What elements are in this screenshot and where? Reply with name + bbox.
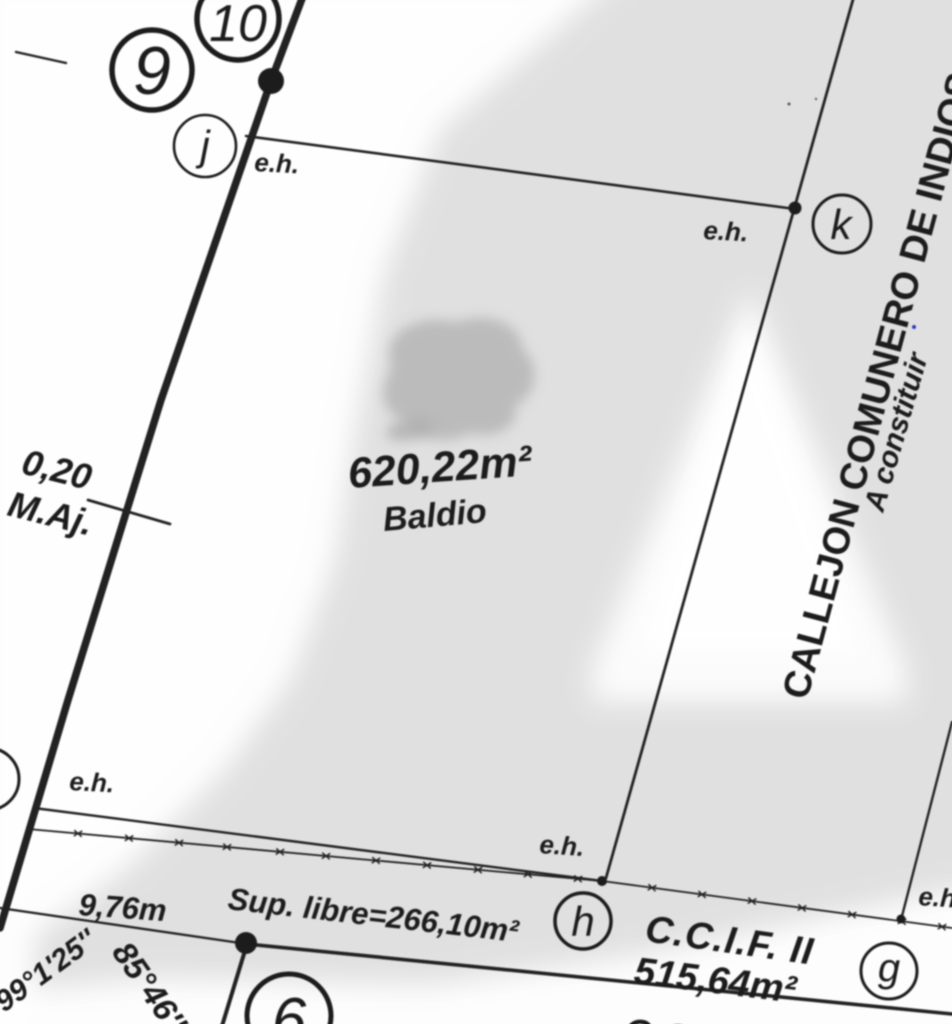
svg-text:g: g	[878, 946, 900, 990]
svg-text:9,76m: 9,76m	[78, 887, 168, 928]
svg-text:9: 9	[133, 33, 171, 109]
svg-text:6: 6	[272, 986, 307, 1024]
svg-text:h: h	[571, 898, 594, 945]
svg-text:e.h.: e.h.	[69, 766, 115, 798]
svg-text:e.h.: e.h.	[539, 829, 586, 862]
svg-text:e.h.: e.h.	[254, 147, 300, 179]
svg-text:10: 10	[209, 0, 267, 53]
svg-text:k: k	[831, 201, 854, 248]
svg-text:e.h.: e.h.	[918, 881, 952, 914]
svg-text:e.h.: e.h.	[703, 215, 749, 247]
